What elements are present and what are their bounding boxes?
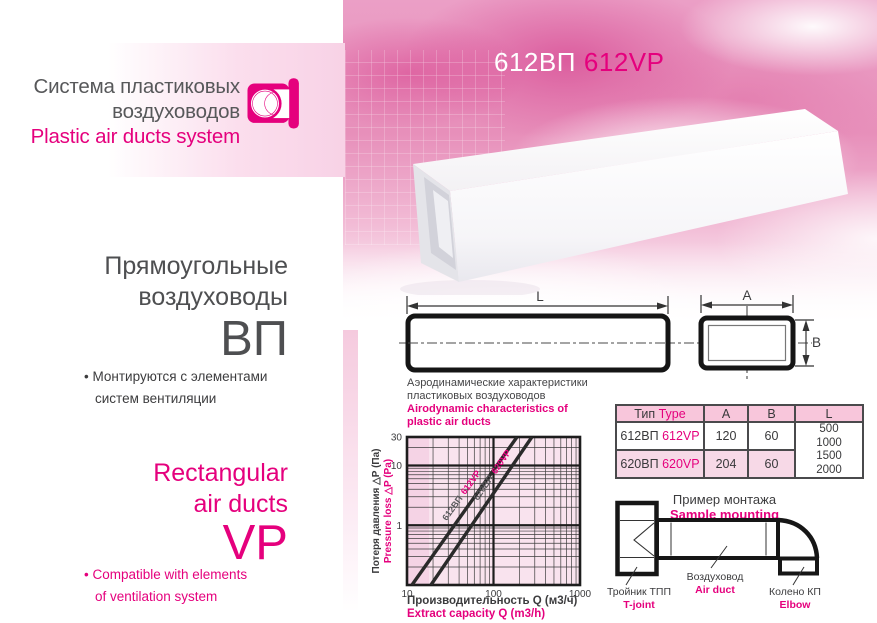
label-tjoint: Тройник ТПП T-joint bbox=[606, 586, 672, 611]
col-l: L bbox=[795, 405, 863, 422]
spec-header-row: Тип Type A B L bbox=[616, 405, 863, 422]
col-b: B bbox=[748, 405, 795, 422]
chart-heading-ru2: пластиковых воздуховодов bbox=[407, 390, 627, 403]
label-elbow-en: Elbow bbox=[764, 599, 826, 612]
cell-b-612: 60 bbox=[748, 422, 795, 450]
brand-title-en: Plastic air ducts system bbox=[16, 124, 240, 149]
svg-text:Потеря давления △P (Па): Потеря давления △P (Па) bbox=[371, 449, 382, 574]
dim-label-l: L bbox=[536, 289, 544, 304]
brand-title: Система пластиковых воздуховодов Plastic… bbox=[16, 74, 240, 149]
brand-title-ru-line1: Система пластиковых bbox=[16, 74, 240, 99]
section-heading-en: Rectangular air ducts bbox=[60, 458, 288, 520]
product-code-ru: 612ВП bbox=[494, 47, 576, 77]
series-code-en: VP bbox=[60, 516, 288, 570]
label-tjoint-ru: Тройник ТПП bbox=[606, 586, 672, 599]
svg-text:Pressure loss △P (Pa): Pressure loss △P (Pa) bbox=[383, 459, 394, 563]
cell-type-612: 612ВП 612VP bbox=[616, 422, 704, 450]
col-a: A bbox=[704, 405, 748, 422]
spec-table-wrap: Тип Type A B L 612ВП 612VP 120 60 500 10… bbox=[615, 404, 864, 479]
cell-type-620: 620ВП 620VP bbox=[616, 450, 704, 478]
chart-heading-ru1: Аэродинамические характеристики bbox=[407, 377, 627, 390]
heading-en-line1: Rectangular bbox=[60, 458, 288, 489]
spec-table: Тип Type A B L 612ВП 612VP 120 60 500 10… bbox=[615, 404, 864, 479]
spec-row-612: 612ВП 612VP 120 60 500 1000 1500 2000 bbox=[616, 422, 863, 450]
svg-text:1: 1 bbox=[396, 521, 402, 532]
duct-product-photo bbox=[400, 95, 860, 295]
feature-ru-line2: систем вентиляции bbox=[84, 388, 294, 410]
chart-xlabel-ru: Производительность Q (м3/ч) bbox=[407, 595, 627, 607]
label-elbow-ru: Колено КП bbox=[764, 586, 826, 599]
section-heading-ru: Прямоугольные воздуховоды bbox=[60, 251, 288, 313]
cell-b-620: 60 bbox=[748, 450, 795, 478]
feature-en-line2: of ventilation system bbox=[84, 586, 294, 608]
feature-ru-line1: • Монтируются с элементами bbox=[84, 366, 294, 388]
cell-a-620: 204 bbox=[704, 450, 748, 478]
duct-logo-icon bbox=[246, 40, 392, 182]
features-ru: • Монтируются с элементами систем вентил… bbox=[84, 366, 294, 410]
brochure-page: Система пластиковых воздуховодов Plastic… bbox=[0, 0, 877, 623]
label-air-duct: Воздуховод Air duct bbox=[682, 571, 748, 596]
pink-side-strip bbox=[343, 330, 358, 612]
series-code-ru: ВП bbox=[60, 312, 288, 366]
aerodynamic-chart: 612ВП612VP620ВП620VP10100100030101Потеря… bbox=[370, 420, 620, 623]
product-code: 612ВП612VP bbox=[494, 47, 665, 78]
label-tjoint-en: T-joint bbox=[606, 599, 672, 612]
label-elbow: Колено КП Elbow bbox=[764, 586, 826, 611]
chart-xlabel-en: Extract capacity Q (m3/h) bbox=[407, 608, 627, 620]
heading-ru-line1: Прямоугольные bbox=[60, 251, 288, 282]
dimension-drawing: L A B bbox=[395, 283, 840, 391]
col-type: Тип Type bbox=[616, 405, 704, 422]
brand-title-ru-line2: воздуховодов bbox=[16, 99, 240, 124]
label-air-duct-en: Air duct bbox=[682, 584, 748, 597]
cell-a-612: 120 bbox=[704, 422, 748, 450]
cell-l-values: 500 1000 1500 2000 bbox=[795, 422, 863, 478]
heading-ru-line2: воздуховоды bbox=[60, 282, 288, 313]
dim-label-b: B bbox=[812, 335, 821, 350]
feature-en-line1: • Compatible with elements bbox=[84, 564, 294, 586]
svg-text:30: 30 bbox=[391, 433, 403, 444]
chart-heading-en1: Airodynamic characteristics of bbox=[407, 403, 627, 416]
product-code-en: 612VP bbox=[584, 47, 665, 77]
features-en: • Compatible with elements of ventilatio… bbox=[84, 564, 294, 608]
dim-label-a: A bbox=[742, 288, 751, 303]
label-air-duct-ru: Воздуховод bbox=[682, 571, 748, 584]
